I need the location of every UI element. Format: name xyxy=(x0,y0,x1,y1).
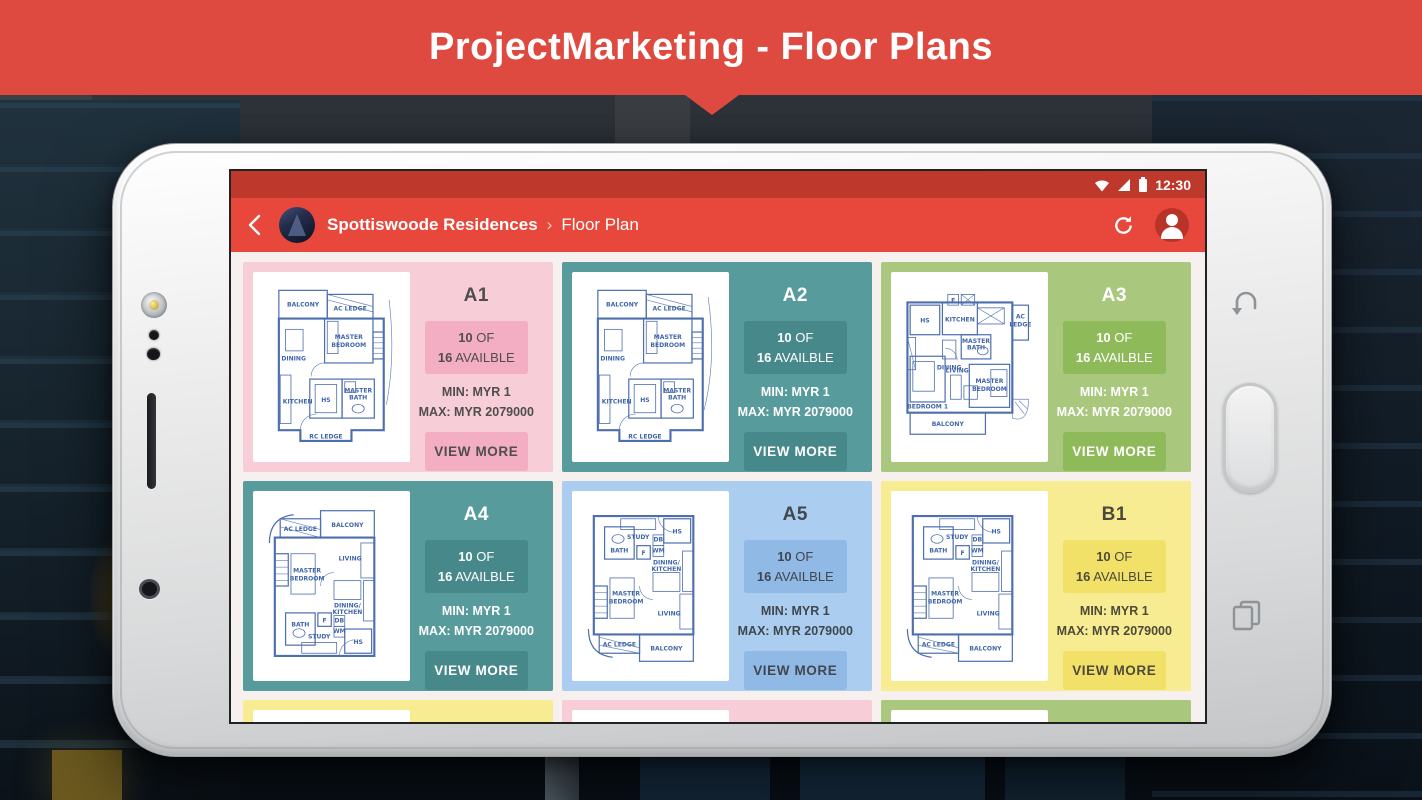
unit-name: A2 xyxy=(737,285,854,307)
svg-text:BATH: BATH xyxy=(967,345,985,352)
svg-text:BALCONY: BALCONY xyxy=(969,646,1002,653)
svg-text:F: F xyxy=(323,617,327,624)
svg-text:BEDROOM: BEDROOM xyxy=(928,598,963,605)
svg-text:BALCONY: BALCONY xyxy=(932,421,965,428)
floor-plan-drawing-b2 xyxy=(256,713,407,724)
min-price: MIN: MYR 1 xyxy=(1056,604,1173,618)
availability-line2: 16 AVAILBLE xyxy=(1067,348,1162,368)
card-info: A5 10 OF 16 AVAILBLE MIN: MYR 1 MAX: MYR… xyxy=(729,491,862,681)
availability-badge: 10 OF 16 AVAILBLE xyxy=(744,540,847,593)
max-price: MAX: MYR 2079000 xyxy=(418,405,535,419)
earpiece-speaker xyxy=(147,393,156,489)
availability-line1: 10 OF xyxy=(748,328,843,348)
unit-name: A4 xyxy=(418,504,535,526)
floor-plan-drawing-a4: AC LEDGE BALCONY LIVING MASTER BEDROOM D… xyxy=(256,494,407,678)
svg-text:WM: WM xyxy=(333,628,346,635)
availability-line1: 10 OF xyxy=(748,547,843,567)
svg-text:AC: AC xyxy=(1016,314,1026,321)
svg-text:BEDROOM 1: BEDROOM 1 xyxy=(907,404,948,411)
svg-text:BEDROOM: BEDROOM xyxy=(609,598,644,605)
min-price: MIN: MYR 1 xyxy=(1056,385,1173,399)
unit-name: B4 xyxy=(1056,723,1173,724)
unit-name: B1 xyxy=(1056,504,1173,526)
unit-name: A5 xyxy=(737,504,854,526)
availability-line2: 16 AVAILBLE xyxy=(748,348,843,368)
background-lit-window xyxy=(52,750,122,800)
min-price: MIN: MYR 1 xyxy=(418,604,535,618)
total-count: 16 xyxy=(757,569,771,584)
unit-name: A3 xyxy=(1056,285,1173,307)
breadcrumb-separator: › xyxy=(547,215,553,235)
floor-plan-image: STUDY HS BATH F DB WM DINING/ KITCHEN MA… xyxy=(891,491,1048,681)
floor-plan-image xyxy=(253,710,410,724)
of-label: OF xyxy=(795,330,813,345)
svg-text:MASTER: MASTER xyxy=(931,590,959,597)
front-camera xyxy=(139,579,160,599)
max-price: MAX: MYR 2079000 xyxy=(1056,405,1173,419)
svg-text:MASTER: MASTER xyxy=(335,334,363,341)
availability-line2: 16 AVAILBLE xyxy=(429,567,524,587)
max-price: MAX: MYR 2079000 xyxy=(418,624,535,638)
svg-text:F: F xyxy=(951,297,955,304)
breadcrumb-page: Floor Plan xyxy=(561,215,638,235)
total-count: 16 xyxy=(438,350,452,365)
of-label: OF xyxy=(795,549,813,564)
total-count: 16 xyxy=(757,350,771,365)
availability-badge: 10 OF 16 AVAILBLE xyxy=(744,321,847,374)
view-more-button[interactable]: VIEW MORE xyxy=(744,432,847,471)
battery-icon xyxy=(1138,177,1148,192)
recents-icon xyxy=(1231,599,1263,633)
floor-plan-drawing-b4 xyxy=(894,713,1045,724)
svg-text:F: F xyxy=(642,550,646,557)
card-info: B2 xyxy=(410,710,543,724)
availability-badge: 10 OF 16 AVAILBLE xyxy=(1063,540,1166,593)
svg-text:KITCHEN: KITCHEN xyxy=(652,566,682,573)
card-info: B1 10 OF 16 AVAILBLE MIN: MYR 1 MAX: MYR… xyxy=(1048,491,1181,681)
svg-text:RC LEDGE: RC LEDGE xyxy=(309,433,342,440)
floorplan-card-a2[interactable]: BALCONY AC LEDGE MASTER BEDROOM DINING K… xyxy=(562,262,872,472)
available-label: AVAILBLE xyxy=(455,569,515,584)
available-count: 10 xyxy=(777,330,791,345)
phone-screen: 12:30 Spottiswoode Residences › Floor Pl… xyxy=(229,169,1207,724)
available-count: 10 xyxy=(777,549,791,564)
availability-line1: 10 OF xyxy=(1067,547,1162,567)
back-button[interactable] xyxy=(247,214,261,236)
floorplan-card-a3[interactable]: HS KITCHEN AC LEDGE DINING MASTER BATH B… xyxy=(881,262,1191,472)
view-more-button[interactable]: VIEW MORE xyxy=(425,651,528,690)
svg-text:MASTER: MASTER xyxy=(293,568,321,575)
floorplan-card-a5[interactable]: STUDY HS BATH F DB WM DINING/ KITCHEN MA… xyxy=(562,481,872,691)
floor-plan-drawing-a5: STUDY HS BATH F DB WM DINING/ KITCHEN MA… xyxy=(575,494,726,678)
svg-text:BEDROOM: BEDROOM xyxy=(331,342,366,349)
svg-text:RC LEDGE: RC LEDGE xyxy=(628,433,661,440)
svg-text:BEDROOM: BEDROOM xyxy=(650,342,685,349)
floorplan-card-b4[interactable]: B4 xyxy=(881,700,1191,724)
total-count: 16 xyxy=(1076,569,1090,584)
svg-text:BALCONY: BALCONY xyxy=(606,301,639,308)
max-price: MAX: MYR 2079000 xyxy=(1056,624,1173,638)
svg-text:MASTER: MASTER xyxy=(975,378,1003,385)
card-info: A3 10 OF 16 AVAILBLE MIN: MYR 1 MAX: MYR… xyxy=(1048,272,1181,462)
svg-text:AC LEDGE: AC LEDGE xyxy=(333,306,366,313)
floorplan-card-a1[interactable]: BALCONY AC LEDGE MASTER BEDROOM DINING K… xyxy=(243,262,553,472)
svg-text:BEDROOM: BEDROOM xyxy=(290,576,325,583)
card-info: B3 xyxy=(729,710,862,724)
page-title: ProjectMarketing - Floor Plans xyxy=(429,26,993,69)
svg-text:BATH: BATH xyxy=(668,394,686,401)
svg-text:KITCHEN: KITCHEN xyxy=(971,566,1001,573)
svg-text:MASTER: MASTER xyxy=(654,334,682,341)
min-price: MIN: MYR 1 xyxy=(737,604,854,618)
hardware-recents-button[interactable] xyxy=(1231,599,1263,638)
svg-text:KITCHEN: KITCHEN xyxy=(283,398,313,405)
view-more-button[interactable]: VIEW MORE xyxy=(425,432,528,471)
svg-text:LIVING: LIVING xyxy=(946,367,969,374)
card-info: A2 10 OF 16 AVAILBLE MIN: MYR 1 MAX: MYR… xyxy=(729,272,862,462)
available-label: AVAILBLE xyxy=(1093,350,1153,365)
floor-plan-image xyxy=(891,710,1048,724)
of-label: OF xyxy=(1114,330,1132,345)
floor-plan-image: HS KITCHEN AC LEDGE DINING MASTER BATH B… xyxy=(891,272,1048,462)
floor-plan-drawing-a1: BALCONY AC LEDGE MASTER BEDROOM DINING K… xyxy=(256,275,407,459)
phone-frame: 12:30 Spottiswoode Residences › Floor Pl… xyxy=(112,143,1332,757)
svg-text:AC LEDGE: AC LEDGE xyxy=(603,642,636,649)
svg-text:HS: HS xyxy=(991,529,1000,536)
svg-text:HS: HS xyxy=(640,397,649,404)
svg-text:LEDGE: LEDGE xyxy=(1009,322,1031,329)
profile-button[interactable] xyxy=(1155,208,1189,242)
of-label: OF xyxy=(476,330,494,345)
breadcrumb-project[interactable]: Spottiswoode Residences xyxy=(327,215,538,235)
available-label: AVAILBLE xyxy=(774,350,834,365)
wifi-icon xyxy=(1094,178,1110,192)
total-count: 16 xyxy=(1076,350,1090,365)
floor-plan-image: BALCONY AC LEDGE MASTER BEDROOM DINING K… xyxy=(572,272,729,462)
proximity-sensor xyxy=(149,330,159,340)
project-avatar[interactable] xyxy=(279,207,315,243)
svg-text:HS: HS xyxy=(353,639,362,646)
svg-text:BEDROOM: BEDROOM xyxy=(972,386,1007,393)
available-count: 10 xyxy=(1096,330,1110,345)
availability-line1: 10 OF xyxy=(429,547,524,567)
svg-text:STUDY: STUDY xyxy=(946,534,969,541)
unit-name: B3 xyxy=(737,723,854,724)
svg-text:BALCONY: BALCONY xyxy=(331,522,364,529)
availability-line2: 16 AVAILBLE xyxy=(429,348,524,368)
svg-text:KITCHEN: KITCHEN xyxy=(602,398,632,405)
app-bar: Spottiswoode Residences › Floor Plan xyxy=(231,198,1205,252)
svg-text:DB: DB xyxy=(654,537,664,544)
view-more-button[interactable]: VIEW MORE xyxy=(1063,651,1166,690)
banner-pointer xyxy=(685,95,739,115)
min-price: MIN: MYR 1 xyxy=(418,385,535,399)
svg-text:BALCONY: BALCONY xyxy=(650,646,683,653)
availability-line1: 10 OF xyxy=(1067,328,1162,348)
available-label: AVAILBLE xyxy=(1093,569,1153,584)
camera-flash-led xyxy=(141,292,167,318)
floor-plan-drawing-a2: BALCONY AC LEDGE MASTER BEDROOM DINING K… xyxy=(575,275,726,459)
floorplan-card-grid: BALCONY AC LEDGE MASTER BEDROOM DINING K… xyxy=(231,252,1205,724)
availability-line2: 16 AVAILBLE xyxy=(748,567,843,587)
availability-badge: 10 OF 16 AVAILBLE xyxy=(1063,321,1166,374)
svg-text:BALCONY: BALCONY xyxy=(287,301,320,308)
floorplan-card-a4[interactable]: AC LEDGE BALCONY LIVING MASTER BEDROOM D… xyxy=(243,481,553,691)
of-label: OF xyxy=(476,549,494,564)
floor-plan-image xyxy=(572,710,729,724)
svg-text:AC LEDGE: AC LEDGE xyxy=(922,642,955,649)
svg-text:WM: WM xyxy=(652,547,665,554)
svg-text:DB: DB xyxy=(973,537,983,544)
svg-text:AC LEDGE: AC LEDGE xyxy=(652,306,685,313)
availability-line1: 10 OF xyxy=(429,328,524,348)
available-label: AVAILBLE xyxy=(774,569,834,584)
floor-plan-image: AC LEDGE BALCONY LIVING MASTER BEDROOM D… xyxy=(253,491,410,681)
svg-text:BATH: BATH xyxy=(349,394,367,401)
max-price: MAX: MYR 2079000 xyxy=(737,405,854,419)
svg-text:HS: HS xyxy=(672,529,681,536)
floorplan-card-b3[interactable]: B3 xyxy=(562,700,872,724)
svg-text:WM: WM xyxy=(971,547,984,554)
svg-text:DINING: DINING xyxy=(281,355,306,362)
screenshot-stage: ProjectMarketing - Floor Plans xyxy=(0,0,1422,800)
back-arrow-icon xyxy=(1229,287,1263,321)
chevron-left-icon xyxy=(247,214,261,236)
svg-text:KITCHEN: KITCHEN xyxy=(945,316,975,323)
svg-text:BATH: BATH xyxy=(929,547,947,554)
refresh-icon[interactable] xyxy=(1112,214,1135,237)
svg-text:DB: DB xyxy=(335,617,345,624)
view-more-button[interactable]: VIEW MORE xyxy=(1063,432,1166,471)
floor-plan-drawing-b1: STUDY HS BATH F DB WM DINING/ KITCHEN MA… xyxy=(894,494,1045,678)
app-bar-actions xyxy=(1112,208,1189,242)
floor-plan-drawing-b3 xyxy=(575,713,726,724)
hardware-back-button[interactable] xyxy=(1229,287,1263,326)
svg-text:LIVING: LIVING xyxy=(339,555,362,562)
min-price: MIN: MYR 1 xyxy=(737,385,854,399)
svg-text:MASTER: MASTER xyxy=(612,590,640,597)
signal-icon xyxy=(1117,178,1131,192)
light-sensor xyxy=(147,348,160,360)
background-block xyxy=(615,95,690,150)
card-info: B4 xyxy=(1048,710,1181,724)
view-more-button[interactable]: VIEW MORE xyxy=(744,651,847,690)
home-button[interactable] xyxy=(1223,383,1277,493)
status-bar: 12:30 xyxy=(231,171,1205,198)
page-banner: ProjectMarketing - Floor Plans xyxy=(0,0,1422,95)
floor-plan-image: STUDY HS BATH F DB WM DINING/ KITCHEN MA… xyxy=(572,491,729,681)
availability-badge: 10 OF 16 AVAILBLE xyxy=(425,540,528,593)
svg-text:DINING: DINING xyxy=(600,355,625,362)
availability-line2: 16 AVAILBLE xyxy=(1067,567,1162,587)
svg-text:STUDY: STUDY xyxy=(308,633,331,640)
available-count: 10 xyxy=(458,330,472,345)
floor-plan-image: BALCONY AC LEDGE MASTER BEDROOM DINING K… xyxy=(253,272,410,462)
svg-text:LIVING: LIVING xyxy=(977,611,1000,618)
svg-text:F: F xyxy=(961,550,965,557)
svg-text:AC LEDGE: AC LEDGE xyxy=(284,526,317,533)
available-count: 10 xyxy=(1096,549,1110,564)
unit-name: B2 xyxy=(418,723,535,724)
svg-text:BATH: BATH xyxy=(610,547,628,554)
card-info: A4 10 OF 16 AVAILBLE MIN: MYR 1 MAX: MYR… xyxy=(410,491,543,681)
svg-text:HS: HS xyxy=(321,397,330,404)
of-label: OF xyxy=(1114,549,1132,564)
svg-text:BATH: BATH xyxy=(291,621,309,628)
floorplan-card-b1[interactable]: STUDY HS BATH F DB WM DINING/ KITCHEN MA… xyxy=(881,481,1191,691)
svg-text:HS: HS xyxy=(920,318,929,325)
floorplan-card-b2[interactable]: B2 xyxy=(243,700,553,724)
clock: 12:30 xyxy=(1155,177,1191,193)
card-info: A1 10 OF 16 AVAILBLE MIN: MYR 1 MAX: MYR… xyxy=(410,272,543,462)
unit-name: A1 xyxy=(418,285,535,307)
available-label: AVAILBLE xyxy=(455,350,515,365)
available-count: 10 xyxy=(458,549,472,564)
total-count: 16 xyxy=(438,569,452,584)
svg-text:KITCHEN: KITCHEN xyxy=(333,609,363,616)
svg-text:STUDY: STUDY xyxy=(627,534,650,541)
svg-text:LIVING: LIVING xyxy=(658,611,681,618)
floor-plan-drawing-a3: HS KITCHEN AC LEDGE DINING MASTER BATH B… xyxy=(894,275,1045,459)
max-price: MAX: MYR 2079000 xyxy=(737,624,854,638)
availability-badge: 10 OF 16 AVAILBLE xyxy=(425,321,528,374)
